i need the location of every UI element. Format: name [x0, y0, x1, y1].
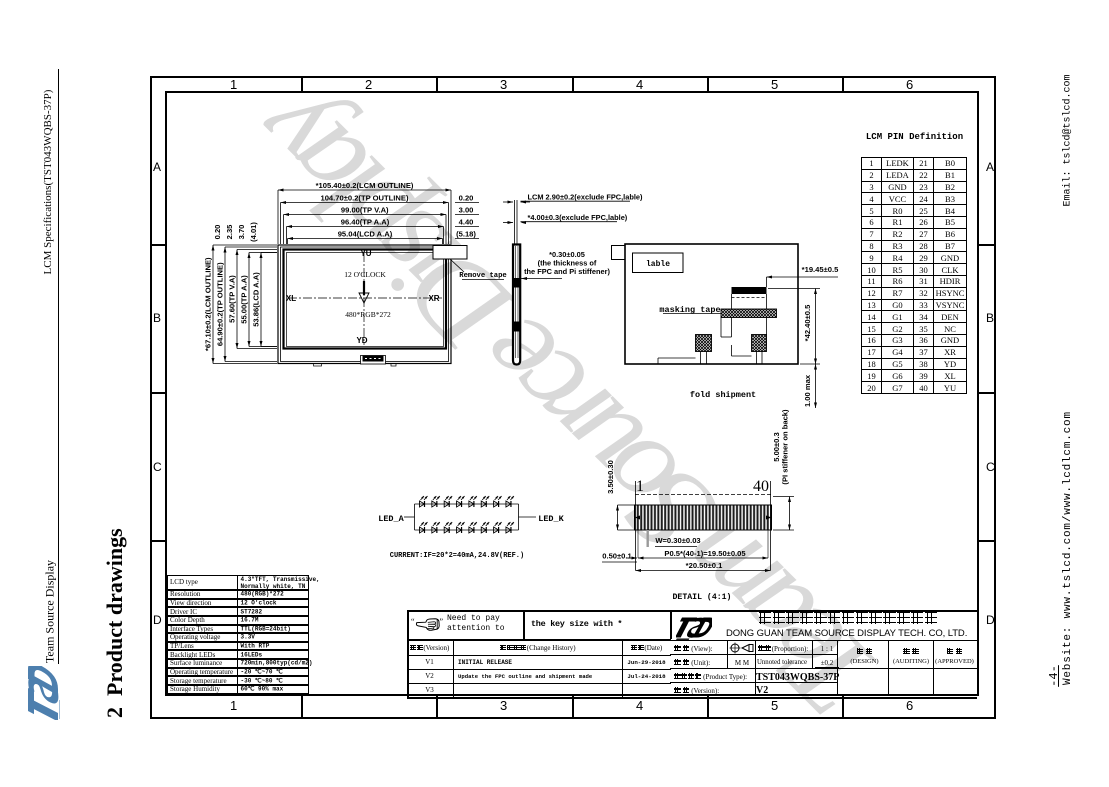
svg-text:P0.5*(40-1)=19.50±0.05: P0.5*(40-1)=19.50±0.05	[664, 549, 746, 558]
svg-text:3.50±0.30: 3.50±0.30	[606, 460, 615, 494]
svg-text:LED_K: LED_K	[538, 514, 564, 524]
svg-text:3.00: 3.00	[459, 206, 474, 215]
svg-text:*42.40±0.5: *42.40±0.5	[803, 304, 812, 341]
svg-text:Remove tape: Remove tape	[459, 272, 506, 280]
svg-text:1: 1	[636, 478, 644, 495]
svg-text:40: 40	[753, 478, 769, 495]
svg-text:3.70: 3.70	[237, 225, 246, 240]
svg-text:96.40(TP A.A): 96.40(TP A.A)	[341, 217, 390, 226]
svg-text:(4.01): (4.01)	[249, 222, 258, 242]
svg-text:(5.18): (5.18)	[456, 230, 476, 239]
svg-text:64.90±0.2(TP OUTLINE): 64.90±0.2(TP OUTLINE)	[216, 262, 225, 346]
svg-text:LCM 2.90±0.2(exclude FPC,lable: LCM 2.90±0.2(exclude FPC,lable)	[528, 193, 643, 202]
svg-text:2.35: 2.35	[225, 224, 234, 240]
svg-text:104.70±0.2(TP OUTLINE): 104.70±0.2(TP OUTLINE)	[320, 193, 408, 202]
svg-text:*67.10±0.2(LCM OUTLINE): *67.10±0.2(LCM OUTLINE)	[204, 257, 213, 351]
svg-text:W=0.30±0.03: W=0.30±0.03	[655, 536, 700, 545]
svg-text:XR: XR	[428, 294, 439, 303]
svg-text:99.00(TP V.A): 99.00(TP V.A)	[341, 205, 389, 214]
svg-text:0.20: 0.20	[213, 225, 222, 240]
svg-text:LED_A: LED_A	[378, 514, 404, 524]
svg-text:95.04(LCD A.A): 95.04(LCD A.A)	[338, 229, 393, 238]
svg-text:*20.50±0.1: *20.50±0.1	[686, 561, 723, 570]
svg-text:*19.45±0.5: *19.45±0.5	[802, 265, 839, 274]
svg-text:57.60(TP V.A): 57.60(TP V.A)	[228, 275, 237, 323]
svg-text:the FPC and Pi stiffener): the FPC and Pi stiffener)	[524, 267, 610, 276]
svg-text:YU: YU	[360, 249, 371, 258]
svg-text:*105.40±0.2(LCM OUTLINE): *105.40±0.2(LCM OUTLINE)	[316, 181, 414, 190]
svg-text:480*RGB*272: 480*RGB*272	[345, 310, 391, 319]
svg-text:DETAIL (4:1): DETAIL (4:1)	[673, 592, 732, 602]
svg-text:4.40: 4.40	[459, 218, 474, 227]
svg-text:*4.00±0.3(exclude FPC,lable): *4.00±0.3(exclude FPC,lable)	[528, 213, 628, 222]
svg-text:YD: YD	[356, 336, 367, 345]
svg-text:0.50±0.1: 0.50±0.1	[602, 552, 632, 561]
svg-text:55.00(TP A.A): 55.00(TP A.A)	[240, 275, 249, 324]
svg-text:“: “	[411, 617, 415, 626]
svg-text:0.20: 0.20	[459, 194, 474, 203]
svg-text:XL: XL	[286, 294, 296, 303]
svg-text:53.86(LCD A.A): 53.86(LCD A.A)	[252, 272, 261, 327]
svg-text:lable: lable	[646, 260, 670, 269]
svg-text:CURRENT:IF=20*2=40mA,24.8V(REF: CURRENT:IF=20*2=40mA,24.8V(REF.)	[390, 552, 524, 560]
svg-text:fold shipment: fold shipment	[690, 390, 756, 400]
svg-text:(PI stiffener on back): (PI stiffener on back)	[781, 409, 790, 485]
svg-text:12 O'CLOCK: 12 O'CLOCK	[344, 270, 386, 279]
svg-text:1.00 max: 1.00 max	[803, 374, 812, 407]
svg-text:”: ”	[440, 617, 444, 626]
